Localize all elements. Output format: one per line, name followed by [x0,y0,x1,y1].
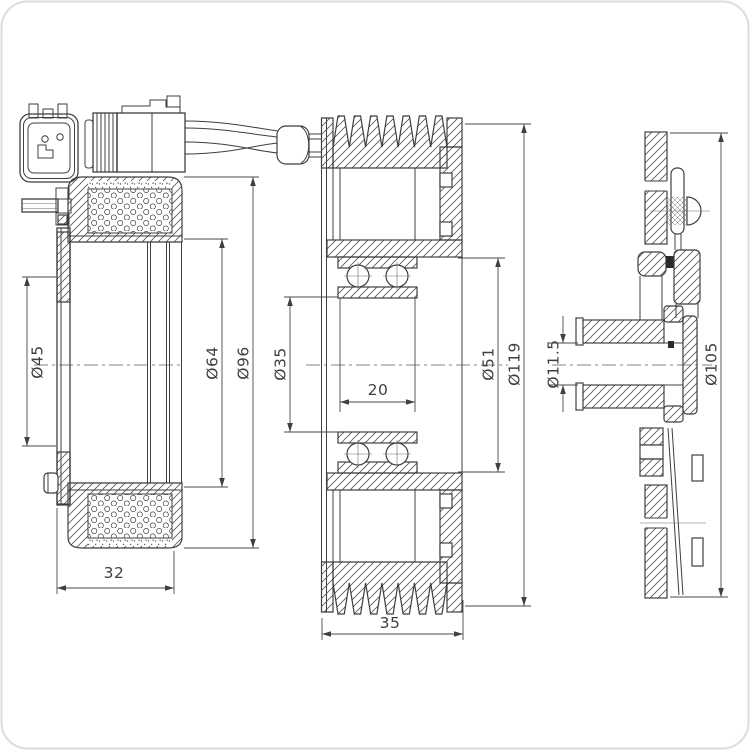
hub-nut-cap [638,252,666,276]
pulley-left-flange-top [322,118,334,168]
dim-label-pulley-outer-diameter: Ø119 [506,342,524,386]
pulley-bearing-housing-bottom [327,473,462,490]
dim-label-hub-plate-diameter: Ø105 [703,342,721,386]
wire-sleeve-wrap [277,126,309,164]
dim-label-hub-bore: Ø11.5 [545,339,563,388]
hub-lower-block-1 [640,428,663,445]
pulley-snapring-groove-4 [440,543,452,557]
hub-damper-block-2 [692,538,703,566]
pulley-snapring-groove-3 [440,494,452,508]
coil-flange-clip-foot [44,473,58,493]
pulley-snapring-groove-1 [440,173,452,187]
hub-plate-split-band-top [644,181,668,191]
coil-flange-hatch-top [57,232,70,302]
dim-label-coil-outer-diameter: Ø96 [235,346,253,379]
hub-lower-block-2 [640,445,663,459]
dim-label-pulley-bearing-width: 20 [368,381,389,399]
hub-friction-plate-bottom [645,485,667,598]
pulley-snapring-groove-2 [440,222,452,236]
coil-winding-bottom [88,494,172,538]
coil-winding-top [88,189,172,233]
technical-drawing: Ø45 Ø64 Ø96 32 [0,0,750,750]
hub-sleeve-wall-top [580,320,664,343]
dim-label-pulley-width: 35 [380,614,401,632]
coil-stipple-strip-top [88,181,172,189]
hub-sleeve-lip-bottom [576,383,583,410]
hub-sleeve-wall-bottom [580,385,664,408]
hub-washer-black [666,256,674,268]
hub-flange-block-upper [674,250,700,304]
hub-block-lower-right [664,406,683,422]
hub-snapring-black [668,341,674,348]
coil-stipple-strip-bottom [88,538,172,546]
coil-terminal-boss-hatch [58,215,67,224]
dim-label-coil-depth: 32 [104,564,125,582]
coil-flange-hatch-bottom [57,452,70,504]
hub-damper-block-1 [692,455,703,481]
pulley-right-flange-bottom [447,583,462,612]
dim-label-coil-core-diameter: Ø64 [204,346,222,379]
dim-label-coil-flange-inner-diameter: Ø45 [29,345,47,378]
dim-label-pulley-bearing-bore: Ø35 [272,347,290,380]
pulley-left-flange-bottom [322,562,334,612]
pulley-right-flange-top [447,118,462,147]
pulley-bearing-housing-top [327,240,462,257]
hub-block-upper-right [664,306,683,322]
hub-lower-block-3 [640,459,663,476]
drawing-canvas: Ø45 Ø64 Ø96 32 [0,0,750,750]
hub-sleeve-lip-top [576,318,583,345]
dim-label-pulley-bearing-seat: Ø51 [480,347,498,380]
